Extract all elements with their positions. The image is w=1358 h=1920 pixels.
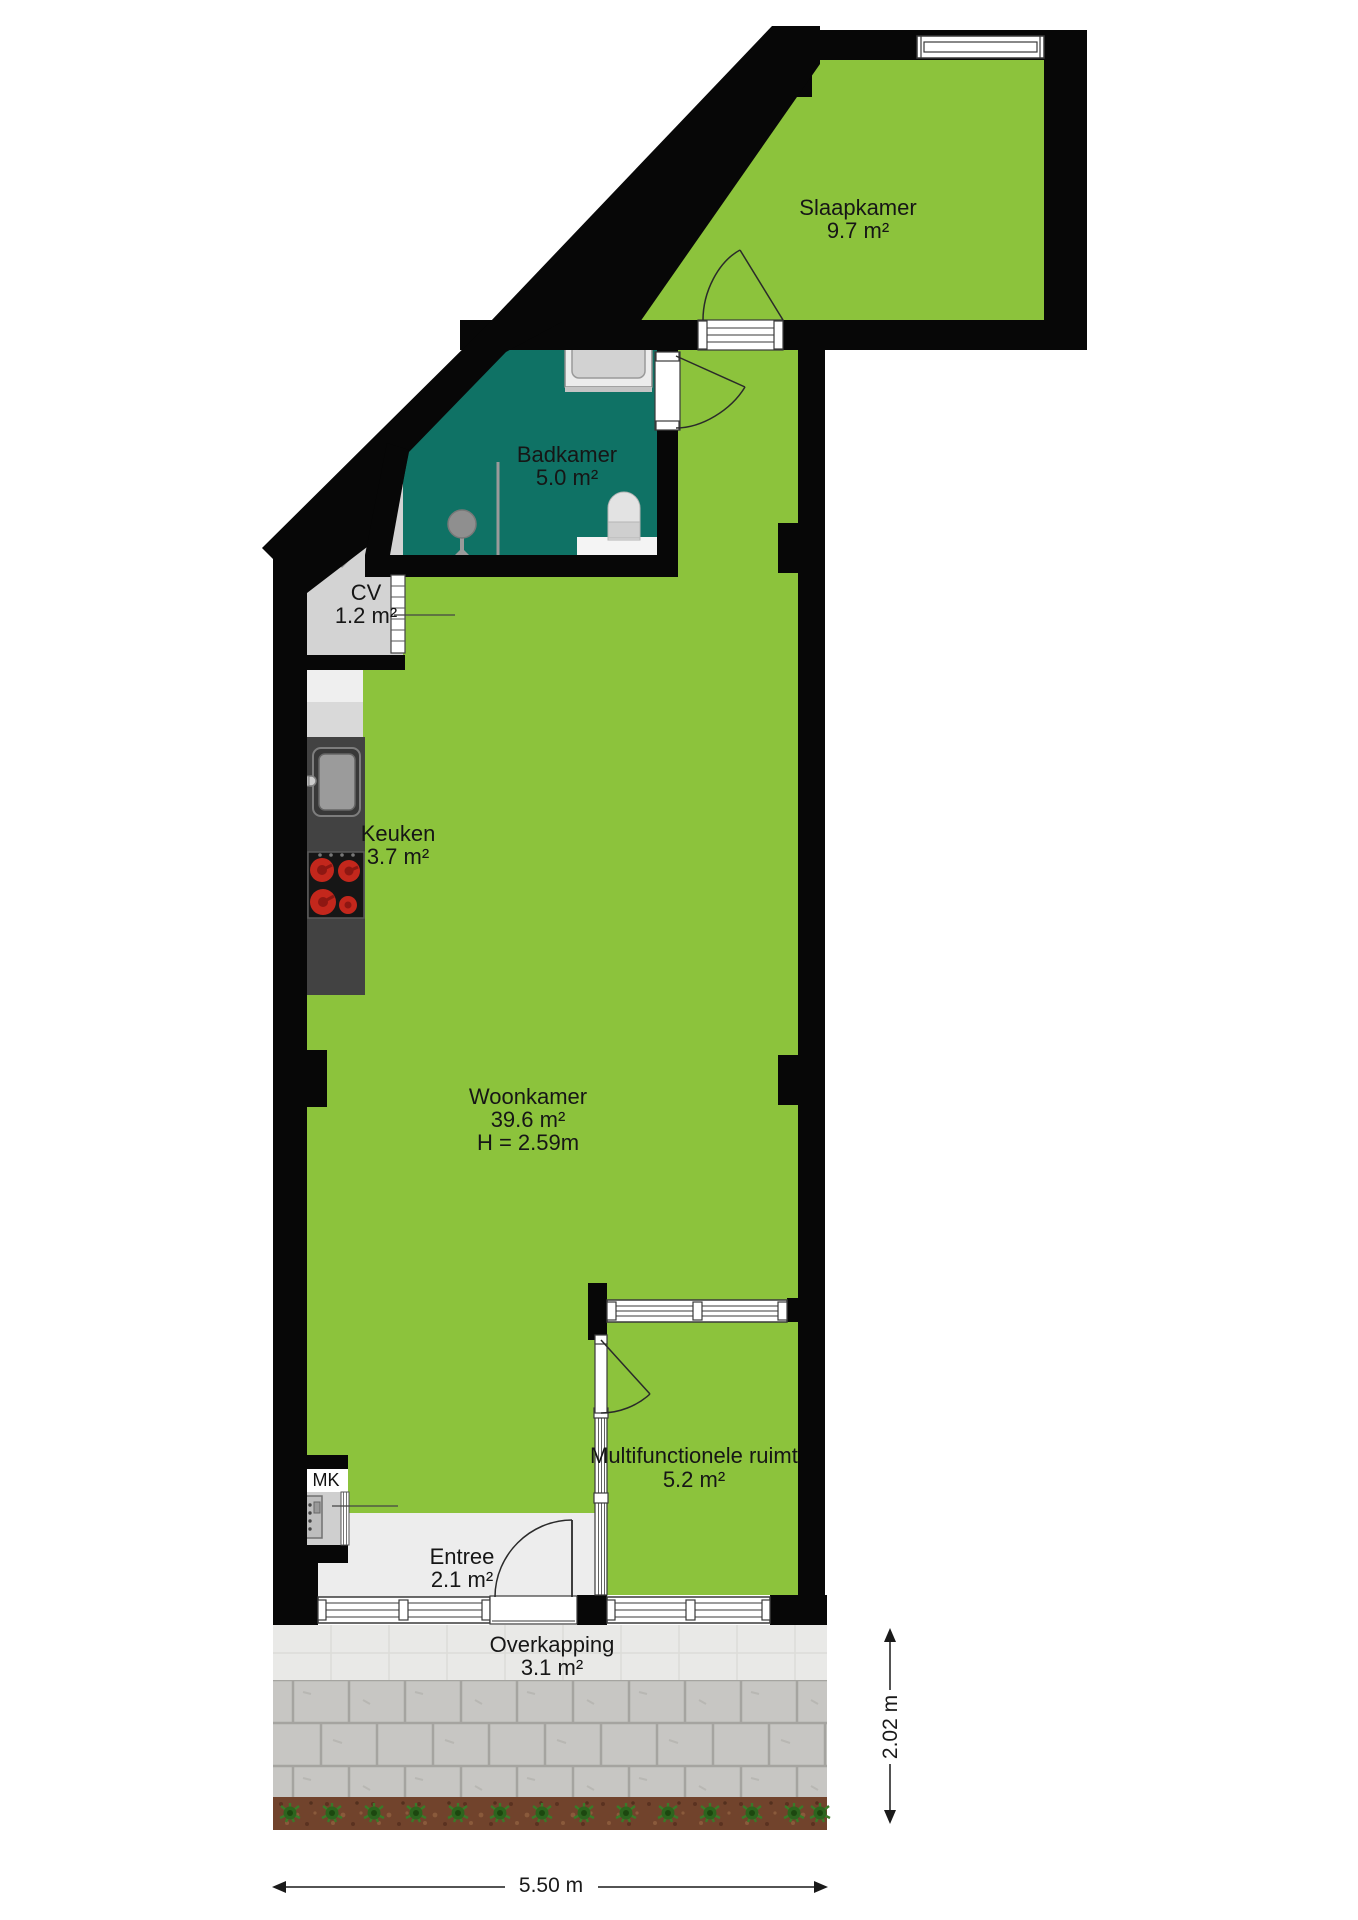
- room-area: 3.1 m²: [490, 1656, 615, 1679]
- room-label-woonkamer: Woonkamer 39.6 m² H = 2.59m: [469, 1085, 587, 1154]
- room-label-overkapping: Overkapping 3.1 m²: [490, 1633, 615, 1679]
- room-label-badkamer: Badkamer 5.0 m²: [517, 443, 617, 489]
- room-label-slaapkamer: Slaapkamer 9.7 m²: [799, 196, 916, 242]
- room-name: CV: [335, 581, 397, 604]
- arrow-up-icon: [884, 1628, 896, 1642]
- dimension-depth-label: 2.02 m: [879, 1695, 903, 1759]
- room-name: Entree: [430, 1545, 495, 1568]
- floorplan-drawing: [0, 0, 1358, 1920]
- floorplan-page: Slaapkamer 9.7 m² Badkamer 5.0 m² CV 1.2…: [0, 0, 1358, 1920]
- mk-door: [341, 1492, 349, 1545]
- room-label-multifunctionele-ruimte: Multifunctionele ruimte 5.2 m²: [590, 1444, 798, 1492]
- room-label-mk: MK: [313, 1471, 340, 1489]
- room-name: Woonkamer: [469, 1085, 587, 1108]
- room-area: 5.2 m²: [590, 1468, 798, 1492]
- paver-tiles: [273, 1680, 827, 1797]
- room-ceiling-height: H = 2.59m: [469, 1131, 587, 1154]
- room-area: 39.6 m²: [469, 1108, 587, 1131]
- room-label-cv: CV 1.2 m²: [335, 581, 397, 627]
- soil-strip: [273, 1797, 827, 1830]
- mfr-south-window: [607, 1597, 770, 1623]
- room-name: Keuken: [361, 822, 436, 845]
- arrow-left-icon: [272, 1881, 286, 1893]
- room-name: Slaapkamer: [799, 196, 916, 219]
- room-label-entree: Entree 2.1 m²: [430, 1545, 495, 1591]
- room-area: 5.0 m²: [517, 466, 617, 489]
- arrow-down-icon: [884, 1810, 896, 1824]
- room-label-keuken: Keuken 3.7 m²: [361, 822, 436, 868]
- room-area: 2.1 m²: [430, 1568, 495, 1591]
- room-name: Badkamer: [517, 443, 617, 466]
- slaapkamer-window: [917, 36, 1044, 58]
- meterkast: [306, 1492, 341, 1545]
- stove-icon: [308, 852, 364, 918]
- room-name: Overkapping: [490, 1633, 615, 1656]
- room-area: 1.2 m²: [335, 604, 397, 627]
- room-area: 9.7 m²: [799, 219, 916, 242]
- room-area: 3.7 m²: [361, 845, 436, 868]
- arrow-right-icon: [814, 1881, 828, 1893]
- entree-window: [318, 1597, 490, 1623]
- dimension-width-label: 5.50 m: [519, 1874, 583, 1898]
- electric-meter-icon: [306, 1496, 322, 1538]
- kitchen-counter: [300, 670, 365, 995]
- mfr-top-window: [607, 1300, 787, 1322]
- room-name: Multifunctionele ruimte: [590, 1444, 798, 1468]
